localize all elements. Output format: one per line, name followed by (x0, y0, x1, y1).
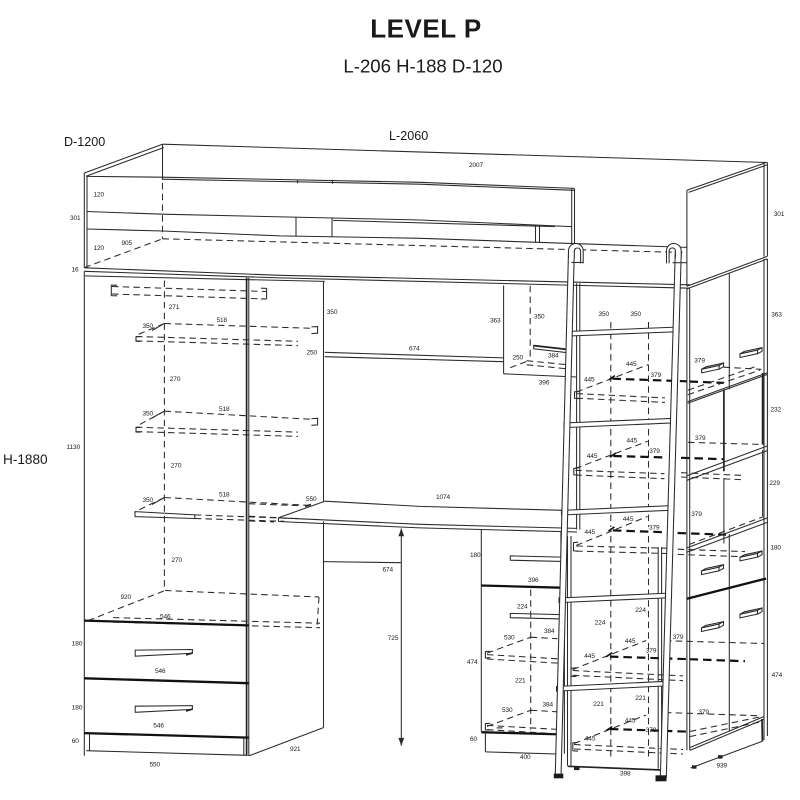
svg-text:518: 518 (219, 406, 230, 413)
svg-text:674: 674 (383, 566, 394, 573)
svg-text:D-1200: D-1200 (64, 135, 105, 149)
svg-text:379: 379 (698, 709, 709, 716)
svg-text:229: 229 (769, 480, 780, 487)
svg-text:250: 250 (513, 355, 524, 362)
svg-text:180: 180 (470, 552, 481, 559)
svg-text:379: 379 (649, 448, 660, 455)
svg-text:350: 350 (143, 497, 154, 504)
svg-text:221: 221 (635, 695, 646, 702)
svg-text:905: 905 (122, 240, 133, 247)
svg-text:474: 474 (772, 672, 783, 679)
svg-text:350: 350 (599, 311, 610, 318)
svg-text:379: 379 (646, 648, 657, 655)
svg-text:60: 60 (470, 736, 478, 743)
svg-text:350: 350 (143, 411, 154, 418)
svg-text:301: 301 (70, 215, 81, 222)
svg-text:180: 180 (72, 641, 83, 648)
svg-text:1130: 1130 (67, 444, 81, 451)
svg-text:363: 363 (771, 312, 782, 319)
svg-text:920: 920 (121, 594, 132, 601)
svg-text:350: 350 (534, 313, 545, 320)
svg-text:379: 379 (695, 435, 706, 442)
svg-text:H-1880: H-1880 (3, 452, 48, 467)
svg-text:350: 350 (143, 323, 154, 330)
svg-text:180: 180 (770, 544, 781, 551)
svg-text:530: 530 (502, 707, 513, 714)
svg-text:379: 379 (691, 511, 702, 518)
svg-text:363: 363 (490, 318, 501, 325)
svg-text:396: 396 (528, 577, 539, 584)
svg-text:120: 120 (94, 192, 105, 199)
svg-text:270: 270 (172, 557, 183, 564)
svg-text:379: 379 (646, 727, 657, 734)
svg-text:725: 725 (388, 635, 399, 642)
svg-text:350: 350 (631, 311, 642, 318)
svg-text:445: 445 (585, 736, 596, 743)
svg-text:270: 270 (171, 463, 182, 470)
svg-text:445: 445 (627, 438, 638, 445)
svg-text:350: 350 (327, 309, 338, 316)
svg-text:221: 221 (515, 678, 526, 685)
svg-text:550: 550 (306, 496, 317, 503)
svg-text:16: 16 (72, 267, 80, 274)
svg-text:232: 232 (771, 407, 782, 414)
svg-text:384: 384 (543, 702, 554, 709)
svg-text:60: 60 (72, 738, 80, 745)
svg-text:445: 445 (623, 516, 634, 523)
svg-text:224: 224 (517, 604, 528, 611)
svg-text:120: 120 (94, 245, 105, 252)
svg-text:546: 546 (153, 723, 164, 730)
svg-text:384: 384 (548, 353, 559, 360)
svg-text:674: 674 (409, 346, 420, 353)
svg-text:250: 250 (307, 350, 318, 357)
svg-text:445: 445 (626, 361, 637, 368)
svg-text:224: 224 (635, 607, 646, 614)
svg-text:445: 445 (584, 377, 595, 384)
svg-text:400: 400 (520, 754, 531, 761)
svg-text:271: 271 (169, 304, 180, 311)
svg-text:270: 270 (170, 376, 181, 383)
svg-text:939: 939 (717, 763, 728, 770)
svg-text:379: 379 (649, 525, 660, 532)
svg-text:L-206 H-188 D-120: L-206 H-188 D-120 (343, 56, 502, 77)
svg-text:398: 398 (620, 770, 631, 777)
svg-text:2007: 2007 (469, 162, 484, 169)
svg-text:379: 379 (673, 634, 684, 641)
svg-text:224: 224 (595, 620, 606, 627)
svg-text:546: 546 (155, 668, 166, 675)
svg-text:445: 445 (585, 529, 596, 536)
svg-text:921: 921 (290, 746, 301, 753)
svg-text:550: 550 (150, 762, 161, 769)
svg-text:L-2060: L-2060 (389, 129, 428, 143)
svg-text:445: 445 (625, 717, 636, 724)
svg-text:445: 445 (584, 653, 595, 660)
svg-text:379: 379 (651, 372, 662, 379)
svg-text:530: 530 (504, 635, 515, 642)
svg-text:518: 518 (219, 492, 230, 499)
svg-text:221: 221 (593, 701, 604, 708)
svg-text:1074: 1074 (436, 494, 451, 501)
svg-text:384: 384 (544, 628, 555, 635)
svg-text:546: 546 (160, 614, 171, 621)
svg-text:LEVEL P: LEVEL P (370, 14, 481, 44)
svg-text:379: 379 (694, 358, 705, 365)
svg-text:445: 445 (587, 453, 598, 460)
svg-text:474: 474 (467, 659, 478, 666)
svg-text:180: 180 (72, 704, 83, 711)
svg-text:396: 396 (539, 380, 550, 387)
svg-text:518: 518 (217, 317, 228, 324)
svg-text:301: 301 (774, 211, 785, 218)
svg-text:445: 445 (625, 638, 636, 645)
